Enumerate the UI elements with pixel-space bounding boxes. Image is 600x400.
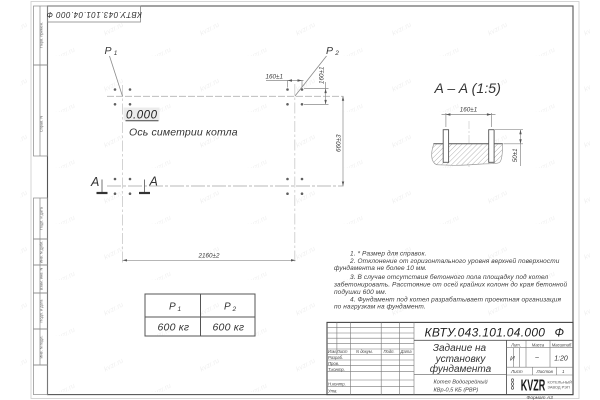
svg-text:Взам. инв. N: Взам. инв. N: [39, 267, 44, 290]
svg-text:Инв. N подл.: Инв. N подл.: [39, 336, 44, 359]
svg-text:КВТУ.043.101.04.000: КВТУ.043.101.04.000: [425, 326, 546, 340]
svg-text:2. Отклонение от горизонтально: 2. Отклонение от горизонтального уровня …: [349, 257, 560, 265]
svg-text:ЗАВОД РЭП: ЗАВОД РЭП: [548, 385, 570, 390]
svg-text:по нагрузкам на фундамент.: по нагрузкам на фундамент.: [334, 303, 426, 311]
svg-text:Перв. примен.: Перв. примен.: [39, 22, 44, 48]
svg-text:–: –: [534, 354, 539, 361]
svg-text:Формат А3: Формат А3: [527, 395, 554, 400]
svg-text:Инв. N дубл.: Инв. N дубл.: [39, 241, 44, 264]
svg-text:A – A (1:5): A – A (1:5): [434, 80, 501, 96]
svg-text:600 кг: 600 кг: [213, 322, 245, 334]
svg-text:N докум.: N докум.: [356, 349, 373, 354]
svg-text:Дата: Дата: [400, 349, 413, 354]
svg-text:Подп. и дата: Подп. и дата: [39, 206, 44, 230]
svg-text:Масштаб: Масштаб: [552, 342, 572, 347]
svg-text:Лит.: Лит.: [510, 342, 521, 347]
svg-text:A: A: [90, 175, 99, 189]
svg-text:A: A: [149, 175, 158, 189]
svg-text:Т.контр.: Т.контр.: [328, 367, 345, 372]
svg-text:Котел Водогрейный: Котел Водогрейный: [434, 379, 488, 386]
svg-text:Масса: Масса: [532, 342, 545, 347]
svg-text:забетонировать. Расстояние от: забетонировать. Расстояние от осей крайн…: [333, 281, 567, 289]
svg-text:КВр-0,5 КБ (РВР): КВр-0,5 КБ (РВР): [434, 387, 479, 393]
svg-text:Разраб.: Разраб.: [328, 355, 343, 360]
svg-text:160±1: 160±1: [319, 67, 326, 84]
svg-text:660±3: 660±3: [336, 134, 343, 152]
svg-text:1:20: 1:20: [554, 355, 568, 362]
svg-text:фундамента не более 10 мм.: фундамента не более 10 мм.: [334, 264, 427, 272]
svg-text:0.000: 0.000: [126, 110, 158, 122]
svg-text:4. Фундамент под котел разраба: 4. Фундамент под котел разрабатывает про…: [350, 296, 562, 304]
svg-text:Пров.: Пров.: [328, 361, 339, 366]
svg-text:Утв.: Утв.: [328, 389, 338, 394]
svg-text:Справ. N: Справ. N: [39, 116, 44, 132]
svg-text:KVZR: KVZR: [521, 378, 546, 395]
svg-text:фундамента: фундамента: [430, 363, 492, 375]
svg-text:ООО: ООО: [510, 378, 516, 390]
svg-text:1. * Размер для справок.: 1. * Размер для справок.: [350, 250, 427, 258]
svg-text:160±1: 160±1: [460, 106, 477, 113]
svg-text:Изм.Лист: Изм.Лист: [328, 349, 348, 354]
svg-text:И: И: [510, 355, 515, 362]
svg-text:Подп.: Подп.: [384, 349, 395, 354]
svg-text:3. В случае отсутствия бетонно: 3. В случае отсутствия бетонного пола пл…: [350, 273, 549, 281]
svg-text:Н.контр.: Н.контр.: [328, 381, 346, 386]
svg-text:Ф: Ф: [555, 326, 565, 340]
svg-text:160±1: 160±1: [266, 74, 283, 81]
svg-text:Листов: Листов: [536, 369, 554, 374]
svg-text:подушки 600 мм.: подушки 600 мм.: [334, 288, 387, 296]
svg-text:Лист: Лист: [510, 369, 523, 374]
svg-text:2160±2: 2160±2: [198, 253, 220, 260]
svg-text:Ось симетрии котла: Ось симетрии котла: [129, 127, 238, 139]
svg-text:КВТУ.043.101.04.000 Ф: КВТУ.043.101.04.000 Ф: [46, 10, 142, 19]
svg-text:50±1: 50±1: [512, 148, 519, 162]
svg-text:Задание на: Задание на: [433, 343, 487, 354]
svg-text:Подп. и дата: Подп. и дата: [39, 299, 44, 323]
svg-text:600 кг: 600 кг: [158, 322, 190, 334]
